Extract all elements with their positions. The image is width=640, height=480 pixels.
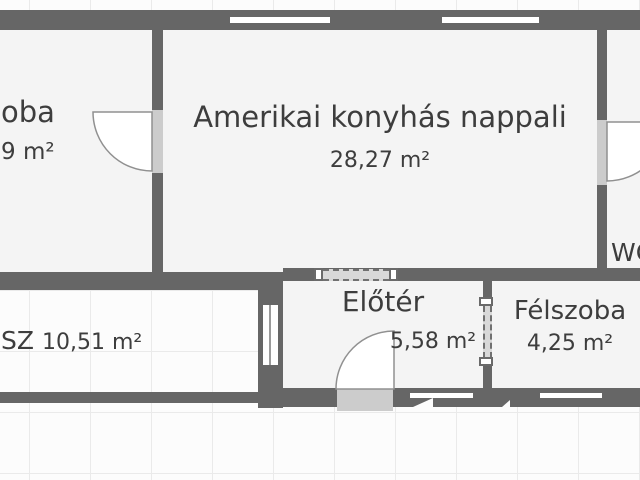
- terasz-area: 10,51 m²: [42, 330, 142, 355]
- window-top-left: [230, 17, 330, 23]
- window-bottom-felszoba: [540, 393, 602, 398]
- opening-post-left: [314, 268, 323, 281]
- entrance-door-opening: [337, 388, 393, 411]
- opening-post-bottom: [479, 357, 493, 366]
- wc-door-opening: [597, 120, 607, 185]
- eloter-label: Előtér: [283, 286, 483, 318]
- szoba-door-opening: [152, 110, 163, 173]
- terasz-label: SZ: [1, 327, 34, 356]
- nappali-label: Amerikai konyhás nappali: [163, 101, 597, 134]
- floor-plan: oba 9 m² Amerikai konyhás nappali 28,27 …: [0, 0, 640, 480]
- window-terasz-pane-line: [269, 305, 271, 365]
- opening-post-right: [389, 268, 398, 281]
- window-top-right: [442, 17, 539, 23]
- room-wc: [607, 27, 640, 272]
- wc-label: WC: [611, 239, 640, 268]
- window-bottom-eloter: [410, 393, 473, 398]
- felszoba-area: 4,25 m²: [492, 331, 640, 356]
- szoba-area: 9 m²: [1, 139, 55, 165]
- wall-middle-left: [0, 272, 283, 290]
- sliding-opening-nappali-eloter: [323, 269, 389, 281]
- szoba-label: oba: [1, 96, 55, 129]
- nappali-area: 28,27 m²: [163, 148, 597, 173]
- wall-terasz-bottom: [0, 392, 263, 403]
- felszoba-label: Félszoba: [492, 297, 640, 327]
